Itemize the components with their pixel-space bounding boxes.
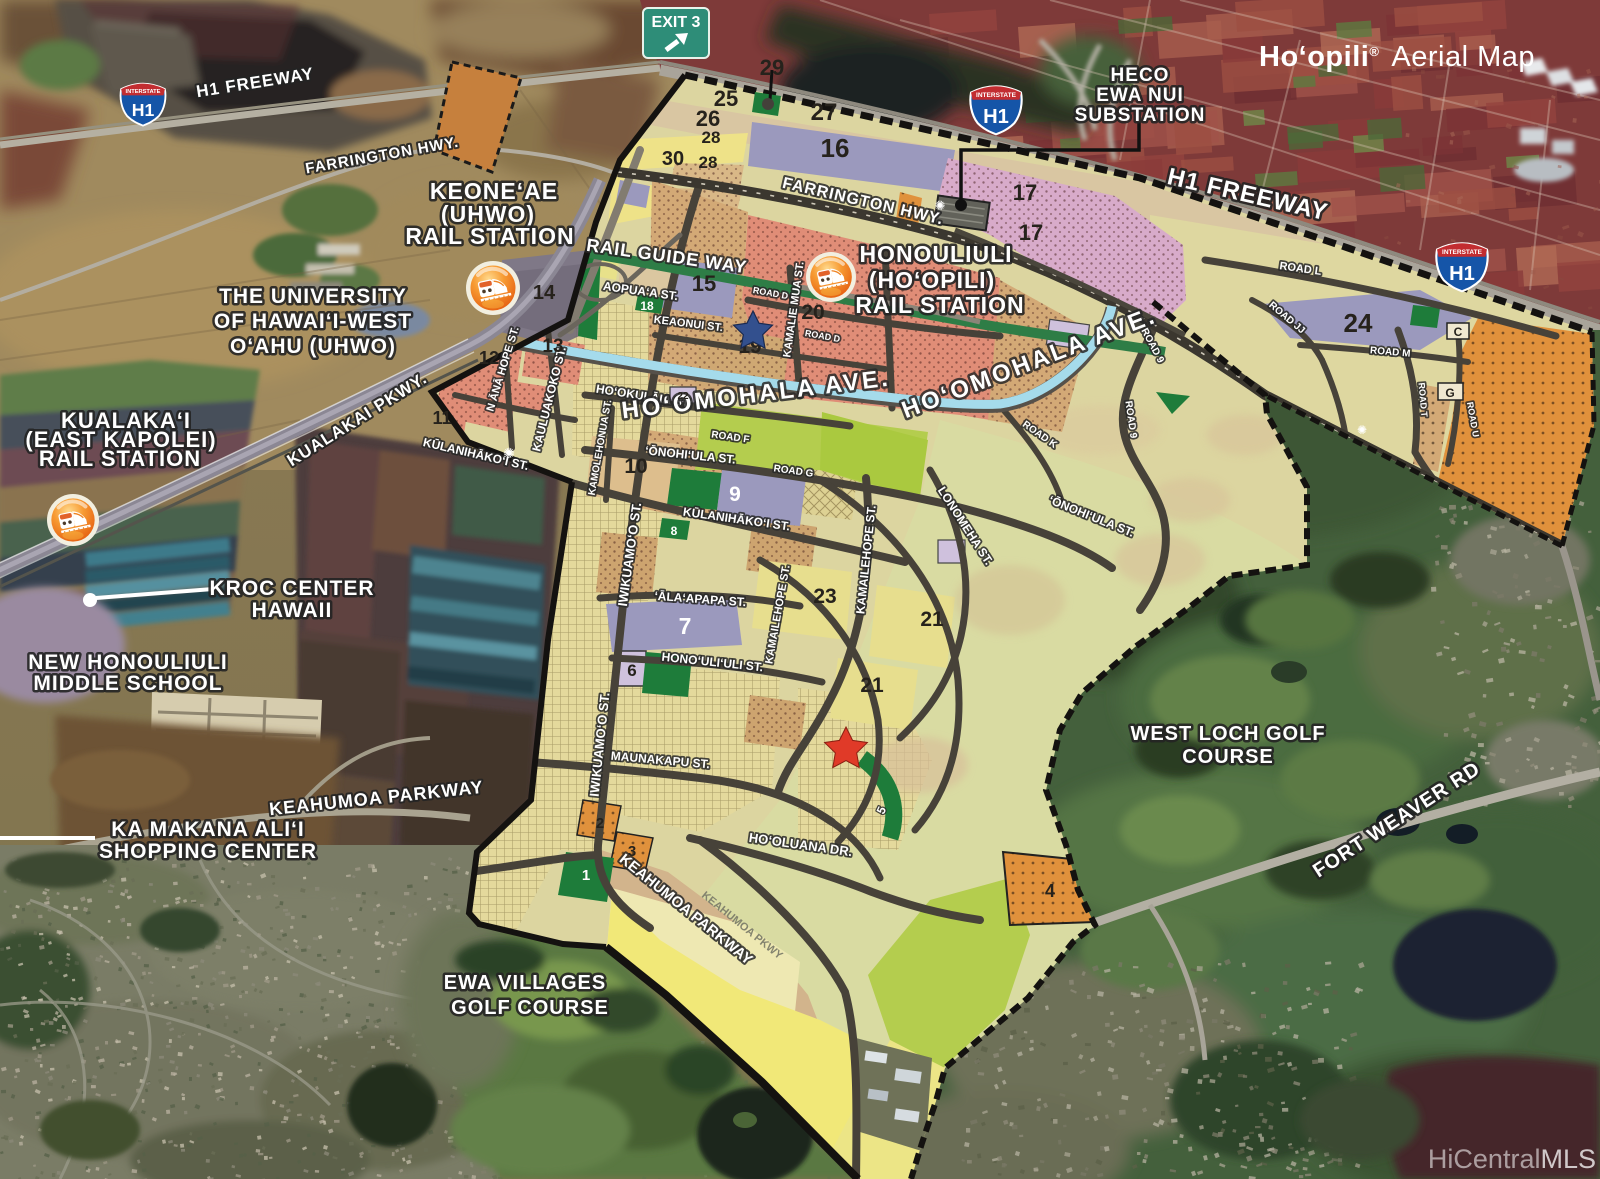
- svg-text:KROC CENTER: KROC CENTER: [209, 577, 374, 600]
- svg-text:RAIL STATION: RAIL STATION: [405, 223, 574, 249]
- svg-text:Ho‘opili® Aerial Map: Ho‘opili® Aerial Map: [1259, 41, 1535, 73]
- svg-text:29: 29: [760, 55, 784, 80]
- svg-text:HAWAII: HAWAII: [252, 599, 333, 622]
- svg-text:15: 15: [692, 271, 716, 296]
- svg-text:MIDDLE SCHOOL: MIDDLE SCHOOL: [33, 672, 222, 695]
- svg-text:C: C: [1454, 325, 1463, 339]
- svg-text:INTERSTATE: INTERSTATE: [126, 89, 161, 95]
- svg-text:WEST LOCH GOLF: WEST LOCH GOLF: [1130, 723, 1325, 745]
- svg-text:H1: H1: [132, 100, 155, 120]
- svg-text:18: 18: [640, 299, 654, 313]
- svg-text:17: 17: [1019, 220, 1043, 245]
- svg-text:1: 1: [582, 867, 590, 884]
- svg-text:GOLF COURSE: GOLF COURSE: [451, 997, 609, 1019]
- svg-text:12: 12: [479, 348, 499, 368]
- svg-text:8: 8: [671, 524, 678, 538]
- svg-text:22: 22: [677, 391, 689, 402]
- svg-text:HiCentralMLS: HiCentralMLS: [1428, 1144, 1596, 1174]
- svg-text:OF HAWAI‘I-WEST: OF HAWAI‘I-WEST: [214, 310, 412, 333]
- svg-text:EXIT 3: EXIT 3: [652, 14, 701, 31]
- svg-text:10: 10: [624, 455, 647, 478]
- svg-text:H1: H1: [1449, 263, 1475, 285]
- svg-text:9: 9: [729, 483, 741, 506]
- svg-text:COURSE: COURSE: [1182, 746, 1274, 768]
- svg-text:INTERSTATE: INTERSTATE: [1442, 249, 1483, 256]
- svg-text:21: 21: [860, 674, 884, 697]
- svg-text:14: 14: [533, 282, 556, 304]
- svg-text:4: 4: [1045, 881, 1055, 901]
- svg-text:KA MAKANA ALI‘I: KA MAKANA ALI‘I: [111, 818, 304, 841]
- svg-text:SHOPPING CENTER: SHOPPING CENTER: [99, 840, 317, 863]
- svg-text:O‘AHU (UHWO): O‘AHU (UHWO): [230, 335, 396, 358]
- svg-text:3: 3: [628, 843, 636, 860]
- svg-text:SUBSTATION: SUBSTATION: [1075, 105, 1206, 126]
- svg-text:✺: ✺: [1357, 423, 1367, 437]
- svg-text:RAIL STATION: RAIL STATION: [855, 292, 1024, 318]
- svg-text:27: 27: [811, 99, 838, 126]
- svg-text:G: G: [1445, 386, 1454, 400]
- svg-text:NEW HONOULIULI: NEW HONOULIULI: [28, 651, 227, 674]
- svg-text:THE UNIVERSITY: THE UNIVERSITY: [219, 285, 407, 308]
- svg-text:RAIL STATION: RAIL STATION: [39, 446, 201, 471]
- svg-text:16: 16: [821, 133, 850, 163]
- svg-text:13: 13: [542, 336, 563, 357]
- svg-text:EWA VILLAGES: EWA VILLAGES: [444, 972, 606, 994]
- svg-text:28: 28: [699, 153, 718, 172]
- svg-text:EWA NUI: EWA NUI: [1096, 85, 1184, 106]
- svg-text:30: 30: [662, 148, 684, 170]
- svg-text:21: 21: [920, 608, 944, 631]
- svg-text:6: 6: [627, 661, 636, 680]
- svg-text:23: 23: [813, 585, 836, 608]
- svg-text:(HO‘OPILI): (HO‘OPILI): [869, 267, 995, 293]
- svg-text:7: 7: [679, 613, 692, 639]
- svg-text:20: 20: [801, 301, 824, 324]
- svg-text:28: 28: [702, 128, 721, 147]
- svg-text:✺: ✺: [935, 198, 946, 213]
- svg-text:17: 17: [1013, 180, 1037, 205]
- svg-text:11: 11: [432, 408, 451, 428]
- svg-text:24: 24: [1344, 308, 1373, 338]
- svg-text:✺: ✺: [503, 445, 515, 461]
- svg-text:INTERSTATE: INTERSTATE: [976, 92, 1017, 99]
- svg-text:HONOULIULI: HONOULIULI: [859, 241, 1012, 267]
- svg-text:2: 2: [596, 815, 604, 832]
- svg-text:HECO: HECO: [1111, 65, 1170, 86]
- svg-text:H1: H1: [983, 106, 1009, 128]
